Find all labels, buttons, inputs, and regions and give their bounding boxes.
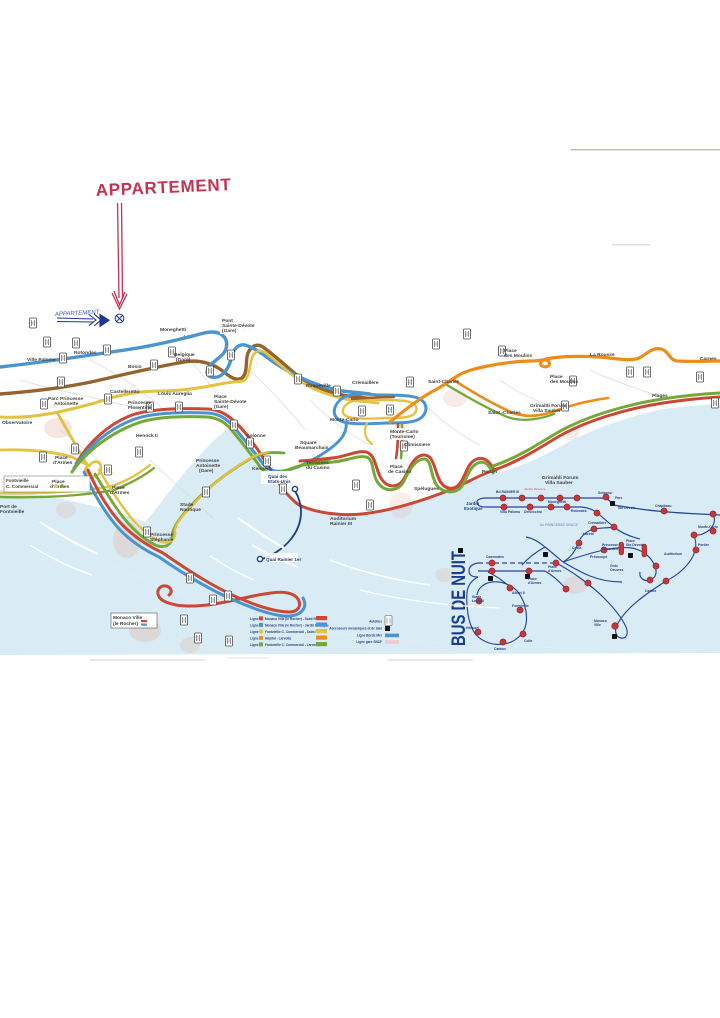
svg-text:Nautique: Nautique xyxy=(180,507,201,513)
svg-text:de Casino: de Casino xyxy=(388,469,411,475)
svg-text:Ligne: Ligne xyxy=(250,624,259,628)
svg-text:Villa Paloma: Villa Paloma xyxy=(500,510,520,514)
svg-text:Crémaillère: Crémaillère xyxy=(588,521,607,525)
svg-text:du Casino: du Casino xyxy=(306,465,330,471)
svg-text:Chapiteau: Chapiteau xyxy=(655,504,671,508)
svg-text:Beaumarchais: Beaumarchais xyxy=(295,445,329,451)
svg-text:Monaco Ville (le Rocher) - Sai: Monaco Ville (le Rocher) - Saint Roman xyxy=(265,617,324,621)
svg-text:Saint -Charles: Saint -Charles xyxy=(488,410,521,416)
svg-text:(Gare): (Gare) xyxy=(199,468,214,474)
svg-text:Louis Aureglia: Louis Aureglia xyxy=(158,391,192,397)
svg-text:Ligne gare SNCF: Ligne gare SNCF xyxy=(356,640,382,644)
svg-text:Préoccupé: Préoccupé xyxy=(590,555,607,559)
svg-text:Portier: Portier xyxy=(482,469,498,475)
svg-text:Rotondes: Rotondes xyxy=(571,509,587,513)
svg-text:Casino: Casino xyxy=(645,589,656,593)
svg-text:Carnes: Carnes xyxy=(700,356,717,362)
svg-text:Saint-Charles: Saint-Charles xyxy=(428,379,460,385)
svg-text:Autobus: Autobus xyxy=(369,620,382,624)
svg-text:Ville Palome: Ville Palome xyxy=(27,357,56,363)
svg-text:APPARTEMENT: APPARTEMENT xyxy=(54,310,101,318)
svg-text:Crémaillère: Crémaillère xyxy=(352,380,379,386)
svg-text:Henock II: Henock II xyxy=(136,433,158,439)
svg-text:C. Commercial: C. Commercial xyxy=(6,484,38,489)
svg-text:Villa Sauber: Villa Sauber xyxy=(533,408,561,414)
svg-text:Stéphanie: Stéphanie xyxy=(150,537,174,543)
svg-text:Colle: Colle xyxy=(524,639,532,643)
svg-text:Colonne: Colonne xyxy=(246,433,266,439)
svg-text:Roqueville: Roqueville xyxy=(306,383,331,389)
svg-text:Villa Sauber: Villa Sauber xyxy=(545,480,573,486)
svg-text:Auditorium: Auditorium xyxy=(664,552,682,556)
svg-text:Jardin Réserve: Jardin Réserve xyxy=(524,487,546,491)
svg-text:BUS DE NUIT: BUS DE NUIT xyxy=(449,551,470,646)
svg-text:Av PRINCESSE GRACE: Av PRINCESSE GRACE xyxy=(540,523,579,527)
svg-text:des Moulins: des Moulins xyxy=(504,353,533,359)
svg-text:Héliport: Héliport xyxy=(466,626,480,630)
svg-text:(Tourisme): (Tourisme) xyxy=(390,434,415,440)
svg-text:Monte-Carlo: Monte-Carlo xyxy=(698,525,718,529)
svg-text:Ligne Bords Mer: Ligne Bords Mer xyxy=(357,634,383,638)
svg-text:Monaco Ville: Monaco Ville xyxy=(113,615,143,621)
svg-text:Florentine: Florentine xyxy=(128,405,152,411)
svg-text:Portier: Portier xyxy=(698,543,710,547)
svg-text:Seigneur: Seigneur xyxy=(598,491,613,495)
svg-text:Albert II: Albert II xyxy=(512,591,525,595)
svg-text:Plages: Plages xyxy=(652,393,668,399)
svg-text:Rainier III: Rainier III xyxy=(330,521,353,527)
svg-text:Observatoire: Observatoire xyxy=(2,420,32,426)
svg-text:Ligne: Ligne xyxy=(250,637,259,641)
svg-text:Bd RAINIER III: Bd RAINIER III xyxy=(496,490,519,494)
svg-text:Canton: Canton xyxy=(494,647,506,651)
svg-text:Casemates: Casemates xyxy=(486,555,504,559)
svg-text:(le Rocher): (le Rocher) xyxy=(113,621,138,627)
svg-text:d'Armes: d'Armes xyxy=(53,460,73,466)
svg-text:Fontvieille C. Commercial - La: Fontvieille C. Commercial - Larvotto xyxy=(265,643,320,647)
svg-text:Quai Rainier 1er: Quai Rainier 1er xyxy=(266,557,301,562)
svg-text:4.2: 4.2 xyxy=(183,334,190,339)
svg-text:Hôpital - Larvotto: Hôpital - Larvotto xyxy=(265,637,291,641)
svg-text:d'Armes: d'Armes xyxy=(50,484,70,490)
svg-text:Delvecchio: Delvecchio xyxy=(524,510,542,514)
svg-text:Florentine: Florentine xyxy=(602,547,619,551)
svg-text:des Moulins: des Moulins xyxy=(550,379,579,385)
svg-text:Fontvieille: Fontvieille xyxy=(0,509,24,515)
svg-text:Ligne: Ligne xyxy=(250,617,259,621)
svg-text:Spélugues: Spélugues xyxy=(414,486,439,492)
svg-text:Ligne: Ligne xyxy=(250,630,259,634)
svg-text:(Gare): (Gare) xyxy=(222,328,237,334)
svg-text:Ascenseurs mécaniques et de li: Ascenseurs mécaniques et de liais xyxy=(329,627,382,631)
svg-text:Ste-Dévote: Ste-Dévote xyxy=(626,543,644,547)
svg-text:Fontvieille: Fontvieille xyxy=(512,604,529,608)
svg-text:Louis II: Louis II xyxy=(472,599,484,603)
svg-text:Kennedy: Kennedy xyxy=(252,466,273,472)
svg-text:Ligne: Ligne xyxy=(250,643,259,647)
svg-text:Ste Dévote: Ste Dévote xyxy=(618,506,636,510)
svg-text:Moneghetti: Moneghetti xyxy=(160,327,187,333)
svg-text:(Gare): (Gare) xyxy=(214,404,229,410)
svg-text:Etats-Unis: Etats-Unis xyxy=(268,479,291,484)
svg-text:Costa: Costa xyxy=(572,546,582,550)
svg-text:d'Armes: d'Armes xyxy=(528,581,542,585)
svg-text:d'Armes: d'Armes xyxy=(548,569,562,573)
svg-text:Parc: Parc xyxy=(615,496,622,500)
svg-text:APPARTEMENT: APPARTEMENT xyxy=(95,175,232,200)
svg-text:Antoinette: Antoinette xyxy=(54,401,78,407)
svg-text:Rotondes: Rotondes xyxy=(74,350,97,356)
svg-text:Monte-Carlo: Monte-Carlo xyxy=(330,417,359,423)
svg-text:Lacets: Lacets xyxy=(583,532,594,536)
svg-text:Exotique: Exotique xyxy=(464,506,483,511)
svg-text:Bosio: Bosio xyxy=(128,364,142,370)
svg-text:La Rousse: La Rousse xyxy=(590,352,615,358)
svg-text:(Gare): (Gare) xyxy=(176,357,191,363)
svg-text:Moneghetti: Moneghetti xyxy=(548,500,566,504)
svg-text:Ville: Ville xyxy=(594,623,601,627)
svg-text:d'Armes: d'Armes xyxy=(110,490,130,496)
svg-text:Climissiere: Climissiere xyxy=(404,442,430,448)
svg-text:Castelleretto: Castelleretto xyxy=(110,389,140,395)
svg-text:Fontvieille: Fontvieille xyxy=(6,478,29,483)
svg-text:Oeuvres: Oeuvres xyxy=(610,568,624,572)
